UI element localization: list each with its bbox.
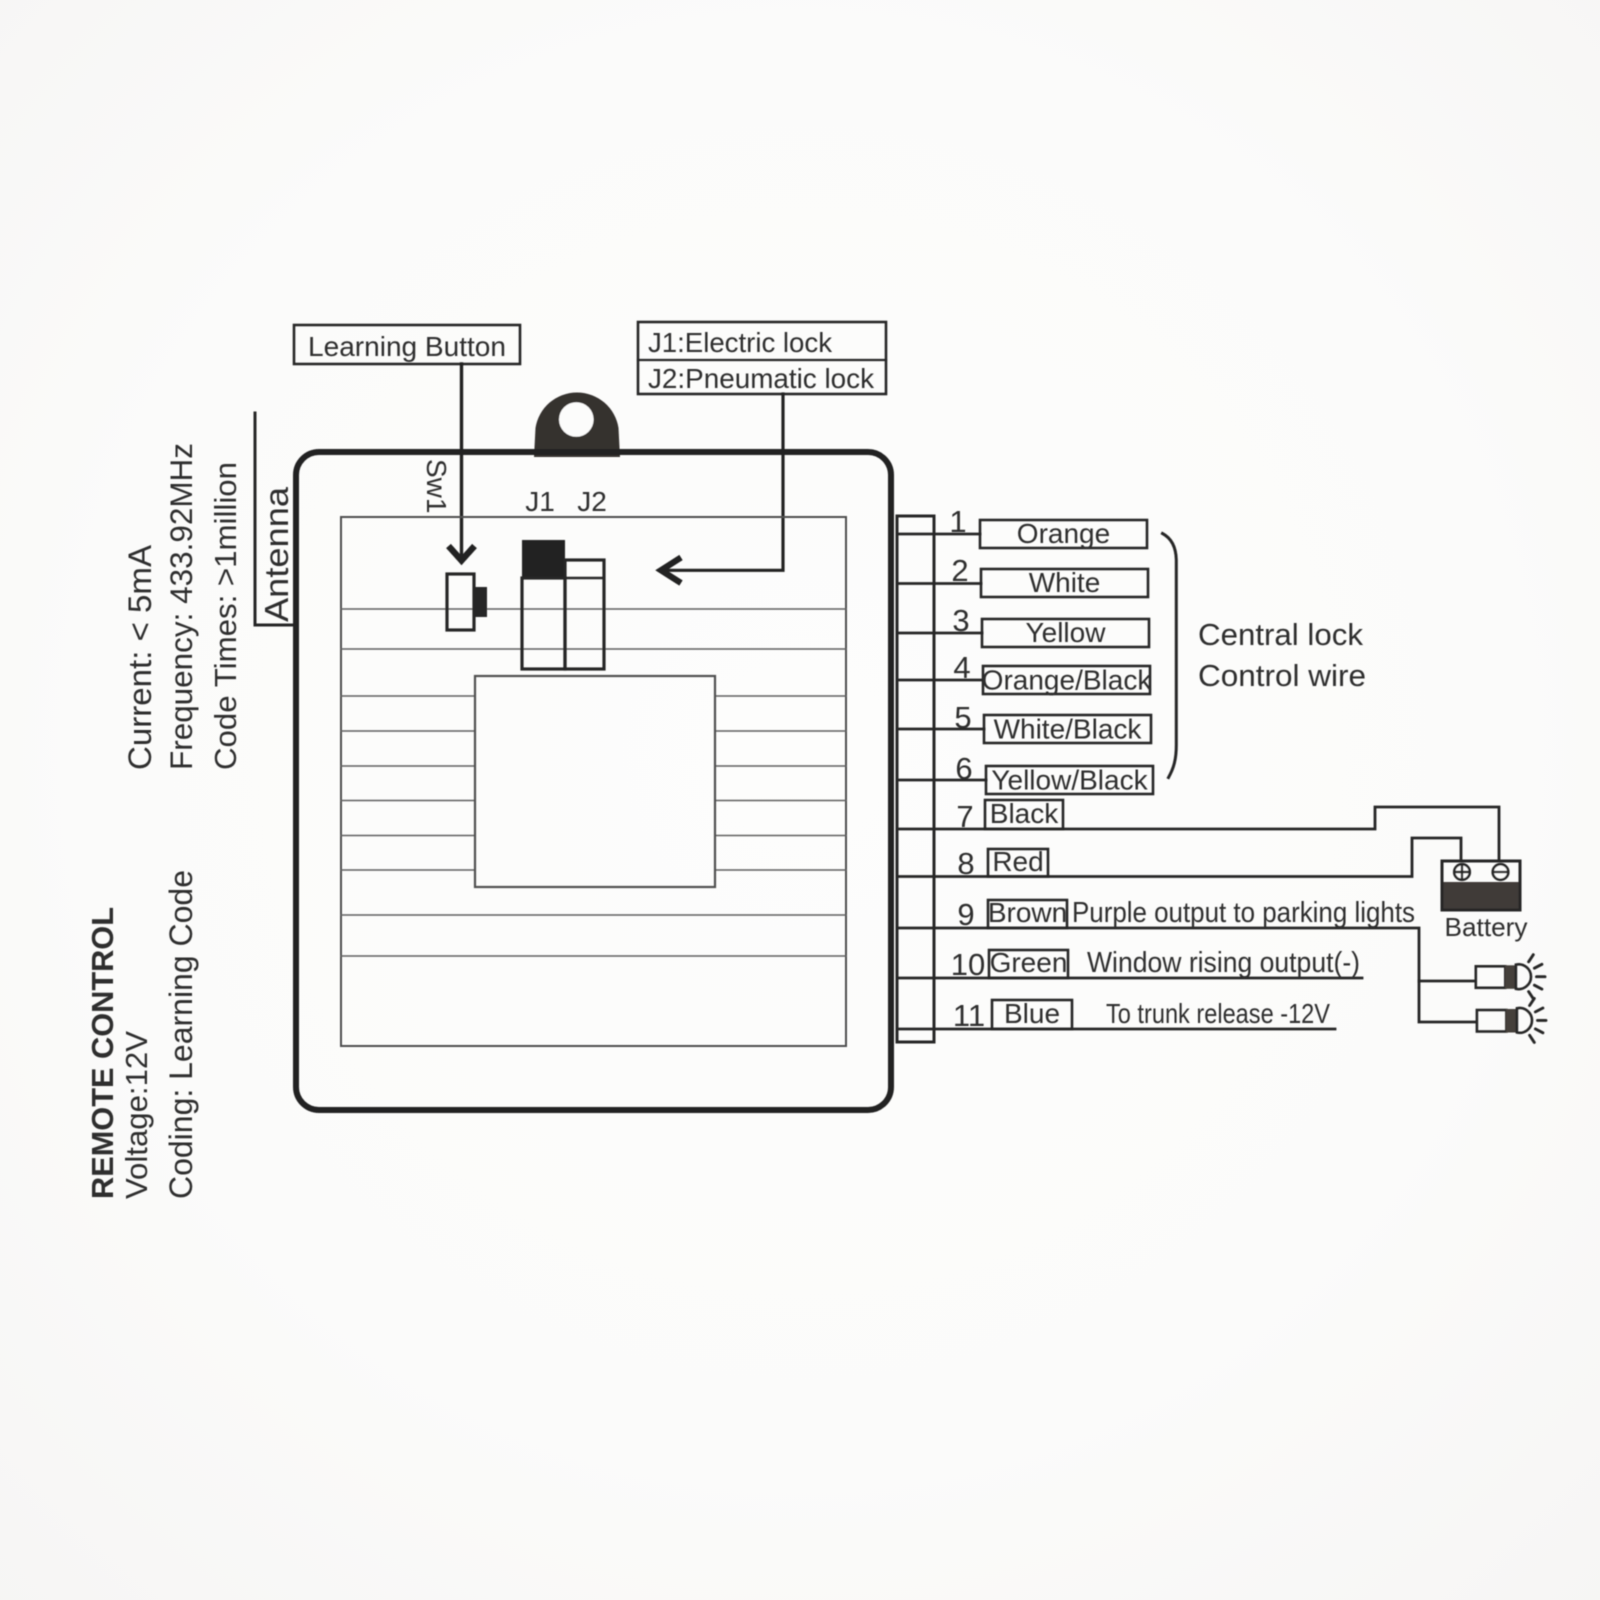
svg-text:4: 4	[953, 650, 970, 685]
svg-text:Control wire: Control wire	[1198, 658, 1366, 693]
svg-text:Voltage:12V: Voltage:12V	[119, 1031, 154, 1199]
svg-text:Black: Black	[990, 798, 1059, 829]
svg-text:Orange: Orange	[1017, 518, 1110, 549]
svg-text:Red: Red	[992, 846, 1043, 877]
svg-text:3: 3	[952, 603, 969, 638]
svg-text:Current: < 5mA: Current: < 5mA	[122, 544, 158, 770]
svg-text:Learning Button: Learning Button	[308, 331, 506, 362]
svg-text:Window rising output(-): Window rising output(-)	[1087, 947, 1360, 979]
svg-text:Sw1: Sw1	[421, 459, 452, 513]
svg-text:Brown: Brown	[988, 897, 1067, 928]
svg-text:2: 2	[951, 553, 968, 588]
svg-text:Frequency: 433.92MHz: Frequency: 433.92MHz	[163, 443, 199, 770]
svg-text:8: 8	[957, 846, 974, 881]
svg-text:5: 5	[954, 700, 971, 735]
svg-text:11: 11	[953, 998, 985, 1033]
svg-text:Central lock: Central lock	[1198, 617, 1363, 652]
svg-text:J1:Electric lock: J1:Electric lock	[648, 327, 833, 358]
svg-text:Yellow/Black: Yellow/Black	[991, 765, 1148, 796]
svg-text:6: 6	[955, 751, 972, 786]
svg-text:REMOTE CONTROL: REMOTE CONTROL	[85, 907, 120, 1199]
svg-text:Orange/Black: Orange/Black	[982, 665, 1153, 696]
svg-text:Battery: Battery	[1445, 912, 1528, 942]
svg-text:Coding: Learning Code: Coding: Learning Code	[163, 870, 199, 1199]
svg-text:1: 1	[949, 504, 966, 539]
svg-text:J2: J2	[577, 486, 607, 517]
svg-text:White/Black: White/Black	[994, 714, 1143, 745]
svg-text:Purple output to parking light: Purple output to parking lights	[1072, 897, 1415, 929]
svg-text:Blue: Blue	[1004, 998, 1060, 1029]
svg-text:7: 7	[956, 799, 973, 834]
svg-text:To trunk release -12V: To trunk release -12V	[1106, 998, 1330, 1029]
svg-text:Code Times: >1million: Code Times: >1million	[208, 462, 243, 770]
svg-text:J1: J1	[525, 486, 555, 517]
svg-text:Yellow: Yellow	[1026, 617, 1107, 648]
svg-text:White: White	[1029, 567, 1101, 598]
svg-text:Green: Green	[990, 947, 1068, 978]
svg-text:Antenna: Antenna	[258, 486, 295, 622]
svg-text:9: 9	[957, 897, 974, 932]
svg-text:J2:Pneumatic lock: J2:Pneumatic lock	[648, 363, 875, 394]
svg-text:10: 10	[951, 947, 985, 982]
